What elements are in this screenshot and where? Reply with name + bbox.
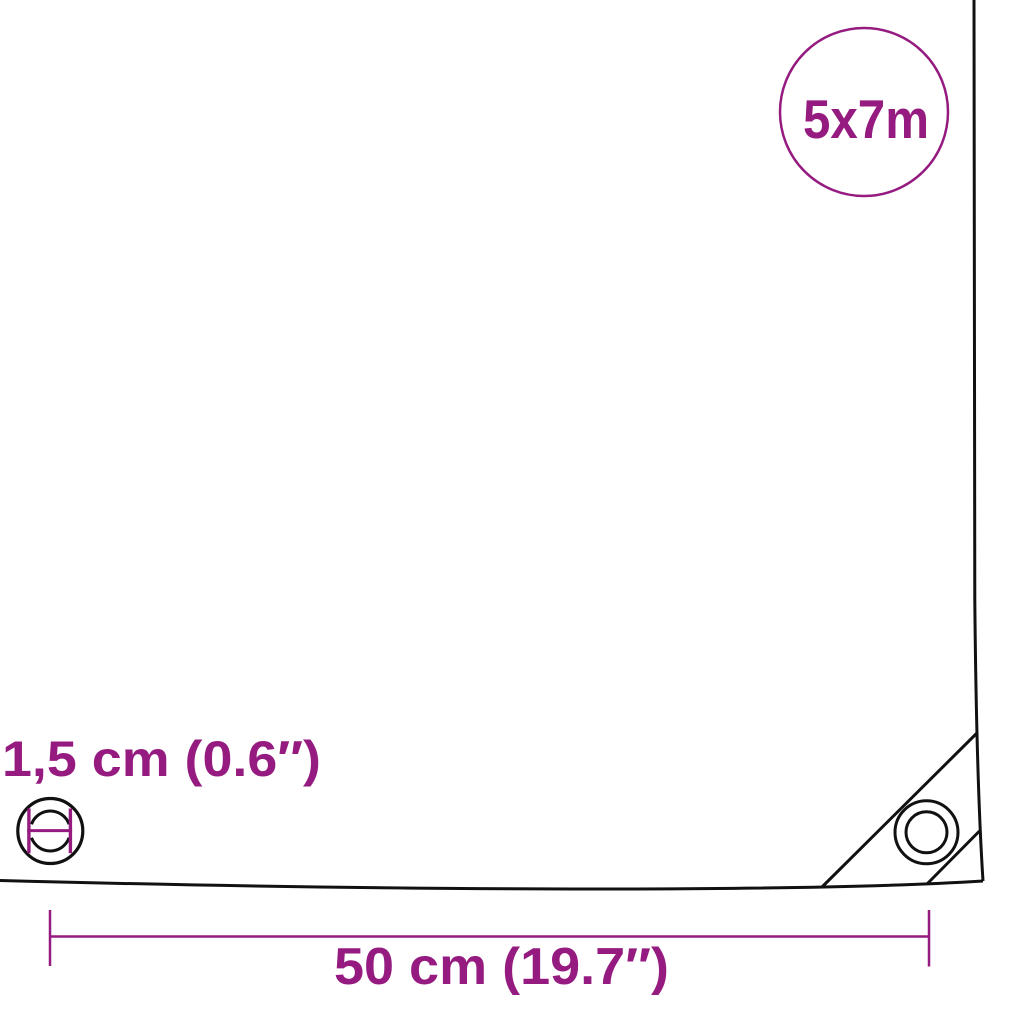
svg-text:1,5 cm (0.6″): 1,5 cm (0.6″) <box>2 731 321 787</box>
svg-text:50 cm (19.7″): 50 cm (19.7″) <box>334 938 669 996</box>
svg-text:5x7m: 5x7m <box>803 88 929 150</box>
